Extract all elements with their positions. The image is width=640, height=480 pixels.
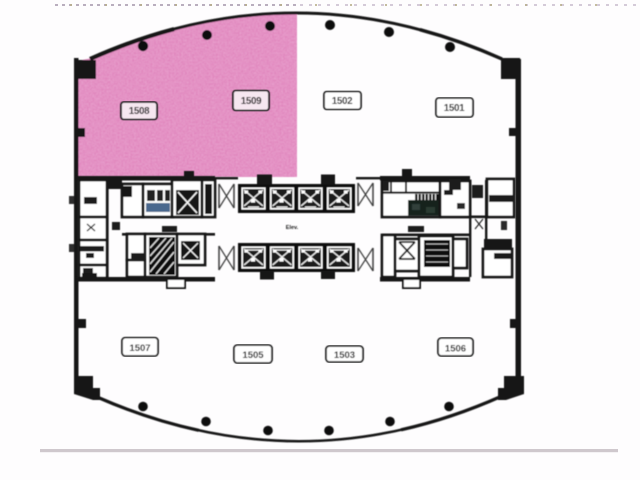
svg-text:Elev.: Elev.: [286, 225, 299, 231]
svg-text:1505: 1505: [242, 350, 264, 361]
svg-text:1506: 1506: [445, 344, 466, 355]
svg-text:1507: 1507: [129, 343, 150, 354]
svg-text:1503: 1503: [334, 350, 355, 361]
svg-text:1508: 1508: [129, 106, 150, 117]
svg-text:1509: 1509: [241, 96, 262, 107]
svg-text:1502: 1502: [332, 96, 353, 107]
svg-text:1501: 1501: [444, 103, 465, 114]
